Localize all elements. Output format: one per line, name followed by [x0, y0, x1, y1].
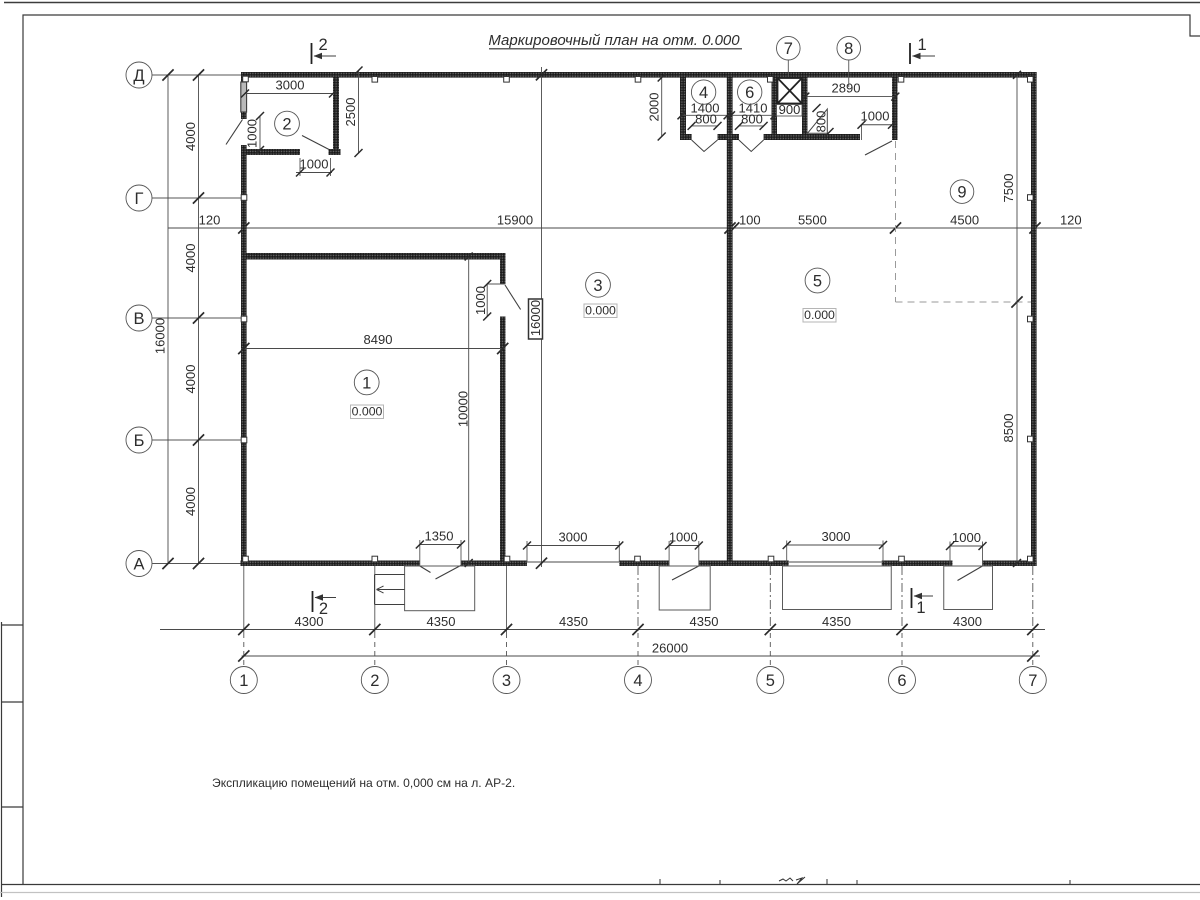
- svg-text:7500: 7500: [1001, 174, 1016, 203]
- svg-text:3: 3: [593, 277, 602, 295]
- svg-text:1000: 1000: [245, 119, 260, 148]
- svg-text:Д: Д: [133, 67, 144, 85]
- svg-text:800: 800: [814, 111, 829, 133]
- svg-text:5500: 5500: [798, 213, 827, 228]
- svg-text:120: 120: [1060, 213, 1082, 228]
- svg-text:4000: 4000: [183, 365, 198, 394]
- svg-text:1000: 1000: [861, 109, 890, 124]
- svg-text:16000: 16000: [153, 318, 168, 354]
- svg-text:900: 900: [779, 102, 801, 117]
- svg-text:Г: Г: [135, 190, 144, 208]
- svg-text:3000: 3000: [276, 78, 305, 93]
- svg-text:1: 1: [362, 374, 371, 392]
- svg-text:10000: 10000: [456, 391, 471, 427]
- svg-text:2500: 2500: [343, 98, 358, 127]
- svg-text:1350: 1350: [425, 529, 454, 544]
- svg-text:1000: 1000: [669, 530, 698, 545]
- svg-text:2890: 2890: [832, 81, 861, 96]
- svg-text:16000: 16000: [528, 300, 543, 336]
- svg-text:5: 5: [766, 672, 775, 690]
- svg-text:2: 2: [282, 116, 291, 134]
- svg-text:4500: 4500: [950, 213, 979, 228]
- svg-text:0.000: 0.000: [804, 308, 835, 322]
- svg-text:4350: 4350: [427, 614, 456, 629]
- svg-text:Экспликацию помещений на отм.: Экспликацию помещений на отм. 0,000 см н…: [212, 776, 515, 790]
- svg-text:4000: 4000: [183, 487, 198, 516]
- svg-text:4350: 4350: [559, 614, 588, 629]
- svg-text:В: В: [133, 310, 144, 328]
- svg-text:1: 1: [239, 672, 248, 690]
- svg-text:0.000: 0.000: [585, 304, 616, 318]
- svg-text:1000: 1000: [473, 286, 488, 315]
- svg-text:15900: 15900: [497, 213, 533, 228]
- svg-text:4000: 4000: [183, 122, 198, 151]
- svg-text:5: 5: [813, 273, 822, 291]
- svg-text:2000: 2000: [647, 93, 662, 122]
- svg-text:4: 4: [633, 672, 642, 690]
- svg-text:6: 6: [897, 672, 906, 690]
- svg-text:1000: 1000: [300, 157, 329, 172]
- svg-text:2: 2: [370, 672, 379, 690]
- svg-text:1: 1: [916, 599, 925, 617]
- svg-text:7: 7: [1028, 672, 1037, 690]
- svg-text:8490: 8490: [364, 332, 393, 347]
- svg-text:100: 100: [739, 213, 761, 228]
- svg-text:120: 120: [199, 213, 221, 228]
- svg-text:4350: 4350: [822, 614, 851, 629]
- svg-text:Маркировочный план на отм. 0.0: Маркировочный план на отм. 0.000: [488, 32, 740, 49]
- svg-text:7: 7: [784, 40, 793, 58]
- svg-text:4000: 4000: [183, 244, 198, 273]
- svg-text:Б: Б: [134, 432, 145, 450]
- svg-text:3: 3: [502, 672, 511, 690]
- svg-text:8500: 8500: [1001, 414, 1016, 443]
- svg-text:800: 800: [695, 112, 717, 127]
- svg-text:3000: 3000: [559, 530, 588, 545]
- svg-text:2: 2: [319, 600, 328, 618]
- svg-text:4300: 4300: [953, 614, 982, 629]
- svg-text:6: 6: [745, 84, 754, 102]
- svg-text:1000: 1000: [952, 530, 981, 545]
- svg-text:800: 800: [741, 112, 763, 127]
- svg-text:4350: 4350: [690, 614, 719, 629]
- svg-text:А: А: [133, 556, 144, 574]
- svg-text:9: 9: [957, 184, 966, 202]
- svg-text:0.000: 0.000: [352, 405, 383, 419]
- svg-text:26000: 26000: [652, 641, 688, 656]
- svg-text:4: 4: [699, 84, 708, 102]
- svg-text:3000: 3000: [822, 529, 851, 544]
- svg-text:1: 1: [918, 36, 927, 54]
- svg-text:8: 8: [844, 40, 853, 58]
- svg-text:2: 2: [319, 36, 328, 54]
